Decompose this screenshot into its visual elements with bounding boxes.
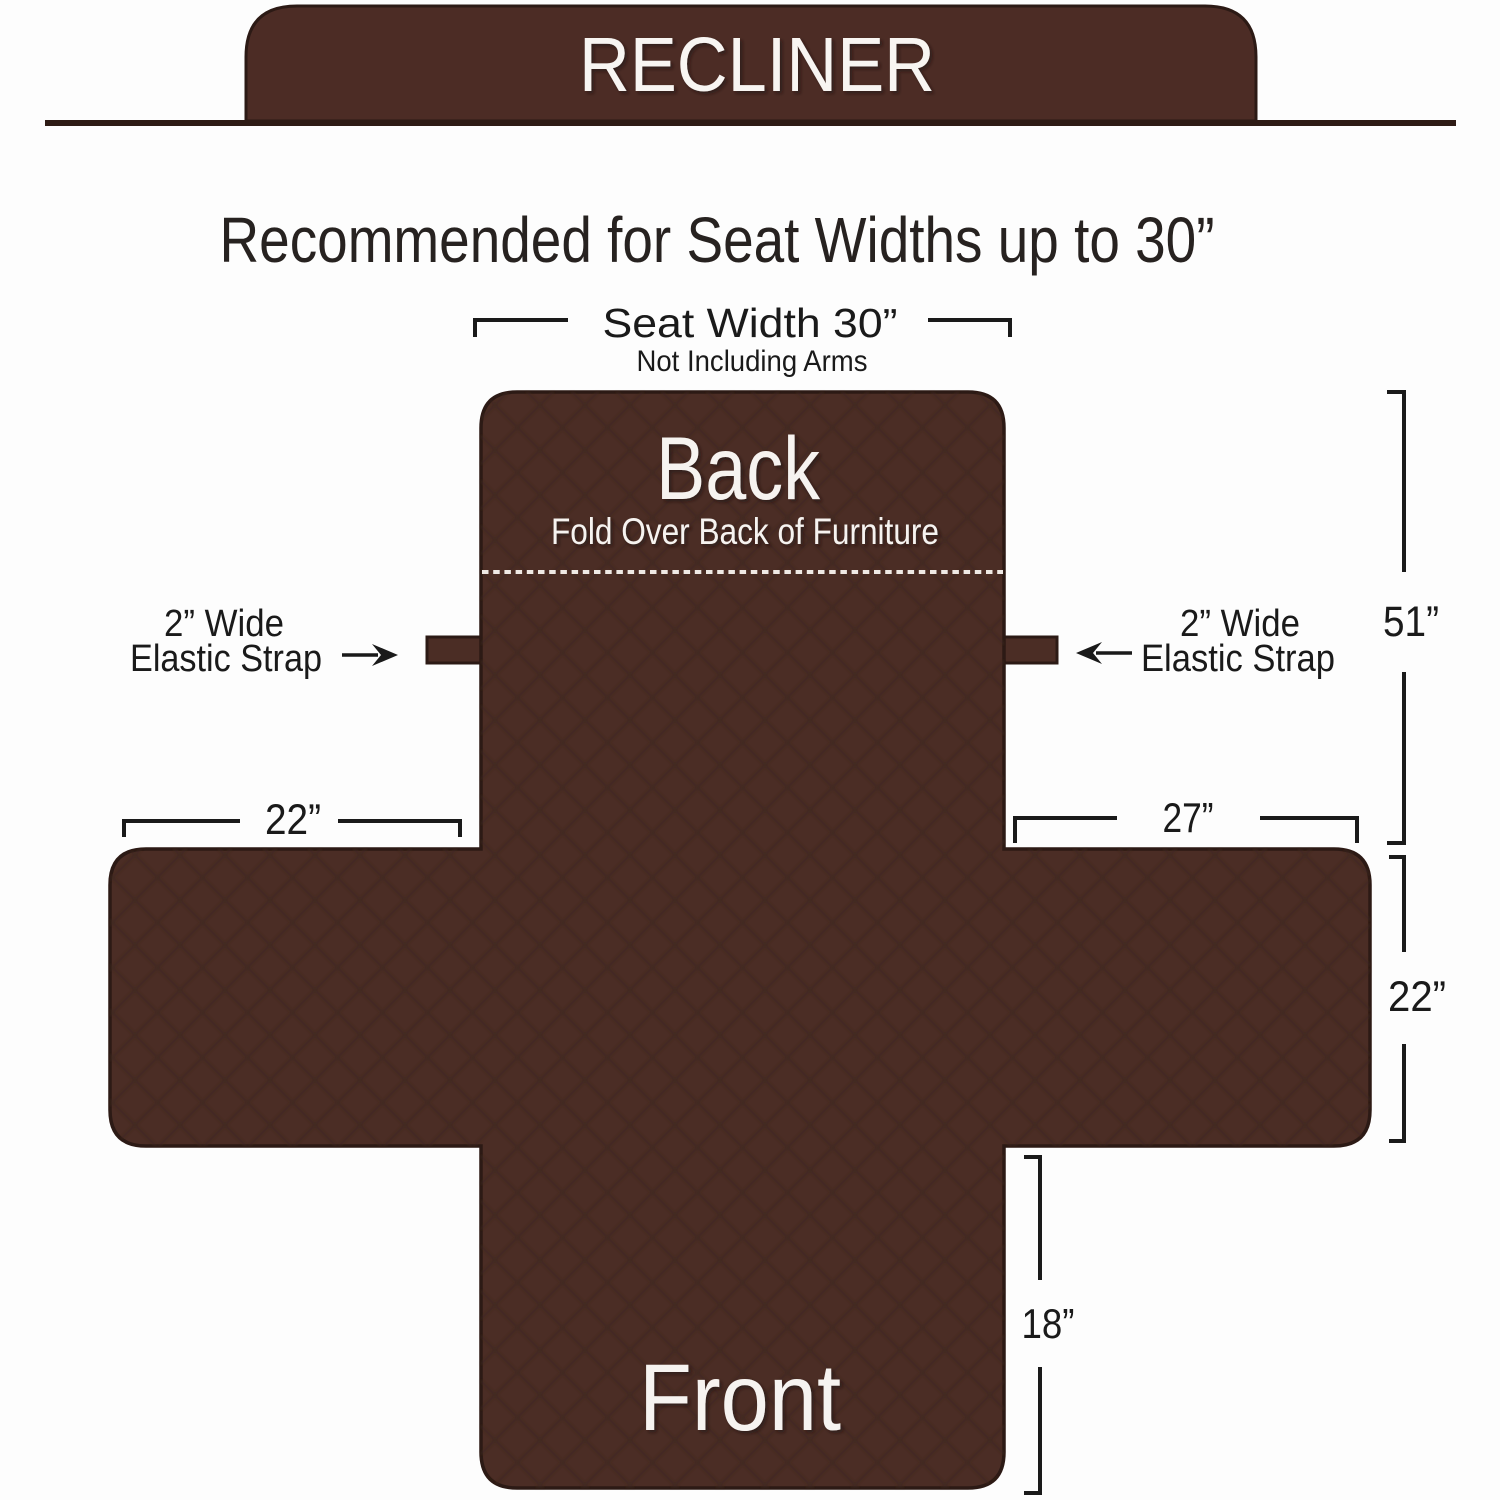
svg-text:Back: Back: [656, 418, 820, 518]
svg-text:Elastic Strap: Elastic Strap: [1141, 638, 1335, 680]
svg-text:Elastic Strap: Elastic Strap: [130, 638, 322, 680]
svg-text:22”: 22”: [1388, 973, 1446, 1021]
svg-text:Front: Front: [639, 1345, 841, 1451]
svg-text:51”: 51”: [1383, 598, 1439, 646]
svg-text:Seat Width 30”: Seat Width 30”: [603, 300, 898, 346]
svg-text:Recommended for Seat Widths up: Recommended for Seat Widths up to 30”: [220, 204, 1215, 276]
svg-text:27”: 27”: [1163, 794, 1214, 841]
svg-text:22”: 22”: [265, 796, 321, 844]
svg-text:18”: 18”: [1022, 1300, 1075, 1347]
svg-text:Fold Over Back of Furniture: Fold Over Back of Furniture: [551, 511, 939, 552]
svg-text:RECLINER: RECLINER: [579, 22, 935, 108]
svg-text:Not Including Arms: Not Including Arms: [637, 345, 868, 378]
